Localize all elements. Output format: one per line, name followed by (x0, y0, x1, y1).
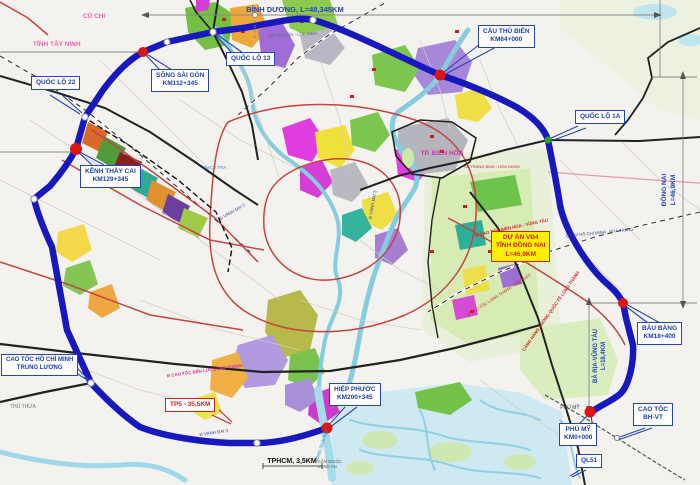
callout-line: KÊNH THẦY CAI (85, 168, 136, 176)
callout-line: QL51 (581, 457, 597, 465)
callout-cao-toc-bhvt: CAO TỐC BH-VT (633, 403, 673, 426)
place-bien-hoa: TP. BIÊN HÒA (421, 148, 464, 157)
callout-line: QUỐC LỘ 13 (231, 55, 270, 63)
node-junction (164, 39, 170, 45)
place-thu-thua: THỦ THỪA (10, 403, 37, 410)
marker-ql1a (545, 137, 552, 144)
dim-dong-nai-1: ĐỒNG NAI (658, 174, 668, 207)
callout-line: BÀU BÀNG (642, 325, 677, 333)
label-rach-tra: RẠCH TRA (204, 165, 226, 170)
callout-line: KM200+345 (334, 394, 376, 402)
callout-line: KM64+000 (483, 36, 530, 44)
callout-kenh-thay-cai: KÊNH THẦY CAI KM129+345 (80, 165, 141, 188)
callout-line: HIỆP PHƯỚC (334, 386, 376, 394)
ring-road-4-map: BÌNH DƯƠNG, L=48,345KM ĐỒNG NAI L=46,9KM… (0, 0, 700, 485)
callout-line: CAO TỐC (638, 406, 668, 414)
callout-bau-bang: BÀU BÀNG KM18+400 (637, 322, 682, 345)
callout-quoc-lo-22: QUỐC LỘ 22 (31, 76, 80, 90)
callout-line: QUỐC LỘ 1A (580, 113, 620, 121)
callout-line: KM129+345 (85, 176, 136, 184)
node-junction (254, 440, 260, 446)
dim-tphcm: TPHCM, 3,5KM (267, 458, 317, 465)
callout-hiep-phuoc: HIỆP PHƯỚC KM200+345 (329, 383, 381, 406)
callout-line: KM18+400 (642, 333, 677, 341)
callout-du-an-vd4-dong-nai: DỰ ÁN VĐ4 TỈNH ĐỒNG NAI L=46,9KM (491, 231, 550, 262)
marker-kenh-thay-cai (70, 143, 82, 155)
callout-phu-my: PHÚ MỸ KM0+000 (559, 423, 597, 446)
callout-line: SÔNG SÀI GÒN (156, 72, 204, 80)
callout-quoc-lo-1a: QUỐC LỘ 1A (575, 110, 625, 124)
road-hcm-trung-luong (0, 383, 91, 402)
callout-line: QUỐC LỘ 22 (36, 79, 75, 87)
callout-line: CẦU THỦ BIÊN (483, 28, 530, 36)
marker-bau-bang (618, 298, 628, 308)
callout-line: KM112+345 (156, 80, 204, 88)
callout-line: L=46,9KM (496, 251, 545, 259)
callout-song-sai-gon: SÔNG SÀI GÒN KM112+345 (151, 69, 209, 92)
callout-cao-toc-hcm-trung-luong: CAO TỐC HỒ CHÍ MINH TRUNG LƯƠNG (1, 354, 78, 376)
callout-tp5-distance: TP5 - 35,5KM (165, 398, 215, 412)
node-ql22 (82, 114, 88, 120)
callout-cau-thu-bien: CẦU THỦ BIÊN KM64+000 (478, 25, 535, 48)
map-canvas: BÌNH DƯƠNG, L=48,345KM ĐỒNG NAI L=46,9KM… (0, 0, 700, 485)
marker-cau-thu-bien (435, 70, 446, 81)
callout-line: BH-VT (638, 414, 668, 422)
label-vd3-a: Đ VÀNH ĐAI 3 (199, 428, 229, 437)
node-junction (31, 196, 37, 202)
callout-quoc-lo-13: QUỐC LỘ 13 (226, 52, 275, 66)
place-long-an: LONG AN (318, 464, 337, 469)
callout-line: KM0+000 (564, 434, 592, 442)
marker-song-sai-gon (138, 47, 148, 57)
callout-line: TP5 - 35,5KM (170, 401, 210, 409)
marker-phu-my (585, 407, 596, 418)
callout-line: TỈNH ĐỒNG NAI (496, 242, 545, 250)
dim-dong-nai-2: L=46,9KM (670, 175, 677, 206)
node-ql13 (210, 29, 216, 35)
callout-line: TRUNG LƯƠNG (6, 365, 73, 373)
callout-ql51: QL51 (576, 454, 602, 468)
callout-line: PHÚ MỸ (564, 426, 592, 434)
place-tay-ninh: TỈNH TÂY NINH (33, 39, 81, 48)
place-cu-chi: CỦ CHI (83, 11, 106, 20)
dim-ba-ria-2: L=18,4KM (601, 342, 607, 370)
node-junction (310, 17, 316, 23)
dim-binh-duong: BÌNH DƯƠNG, L=48,345KM (246, 5, 343, 14)
dim-ba-ria-1: BÀ RỊA-VŨNG TÀU (592, 329, 599, 383)
label-sb-trang-bom: SB TRẢNG BOM - HÒA HƯNG (464, 164, 520, 169)
place-phu-my: PHÚ MỸ (560, 404, 580, 411)
label-vd2: Đ VÀNH ĐAI 2 (219, 202, 247, 221)
node-ben-luc (88, 380, 94, 386)
callout-line: CAO TỐC HỒ CHÍ MINH (6, 357, 73, 365)
